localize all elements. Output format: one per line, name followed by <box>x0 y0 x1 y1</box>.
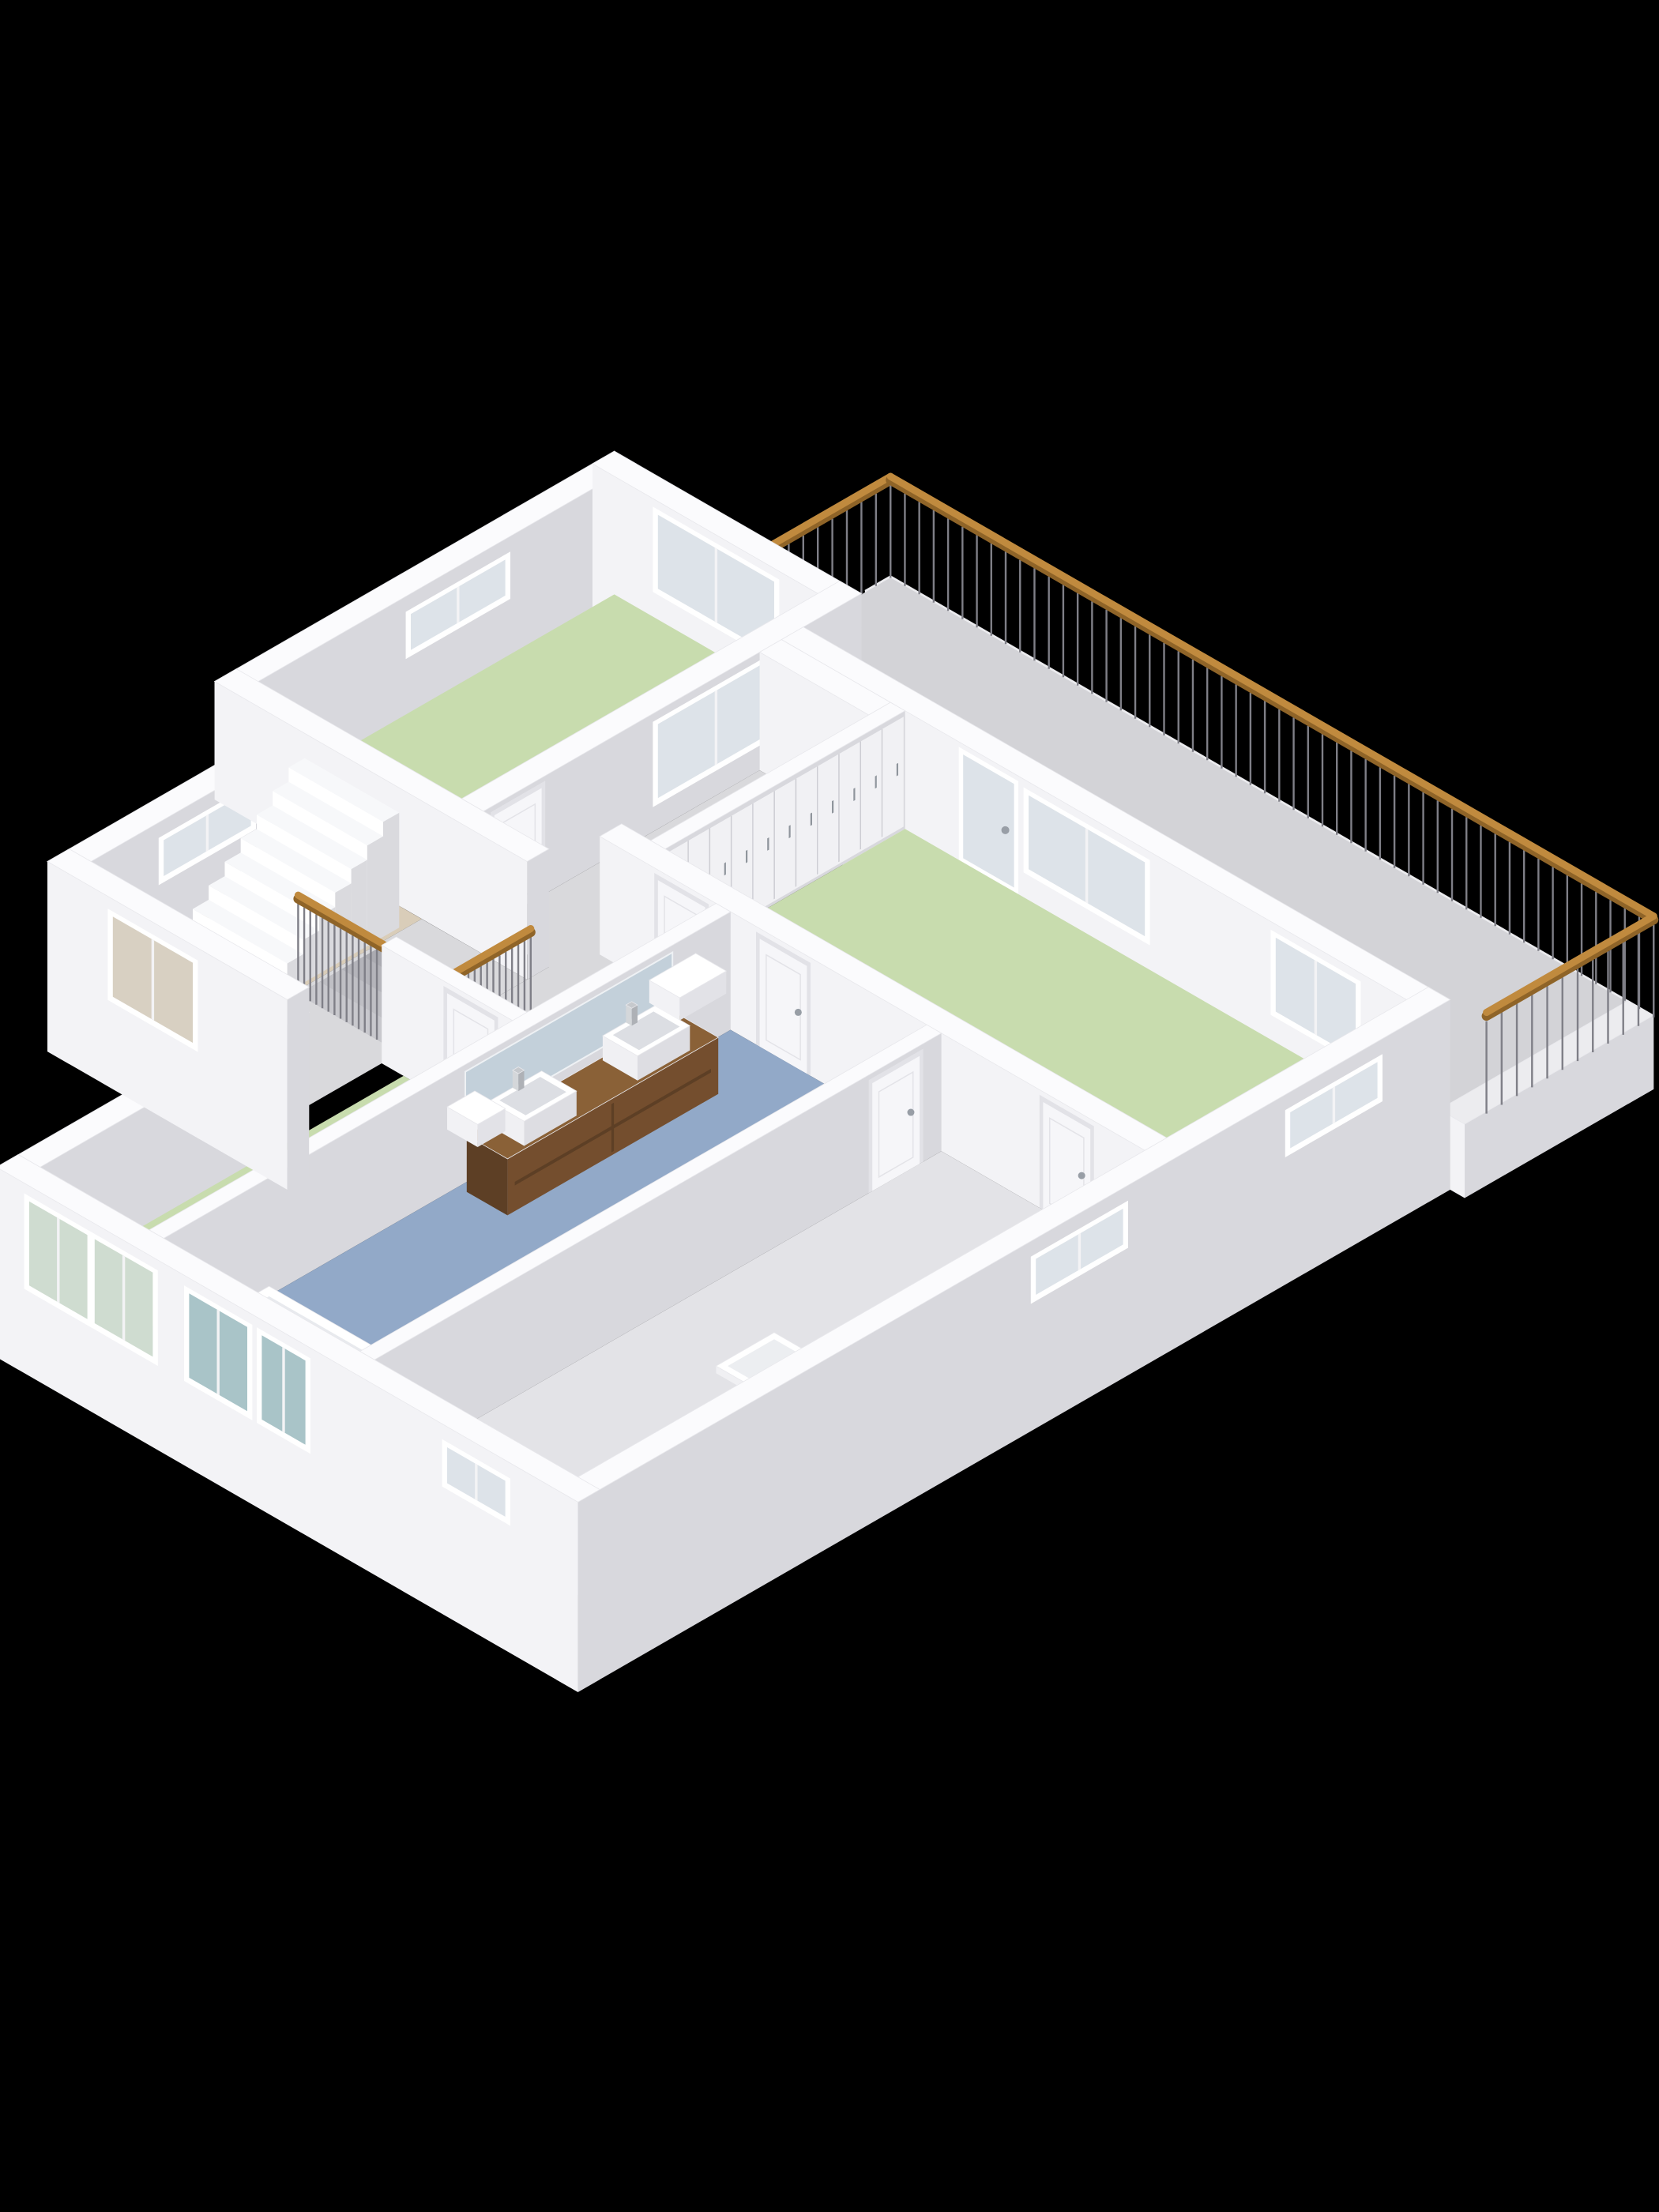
vanity-divider-line <box>611 1103 614 1153</box>
floorplan-canvas <box>0 0 1659 2212</box>
faucet-far <box>626 1002 638 1026</box>
faucet-near <box>513 1067 525 1092</box>
floorplan-render <box>0 0 1659 2212</box>
